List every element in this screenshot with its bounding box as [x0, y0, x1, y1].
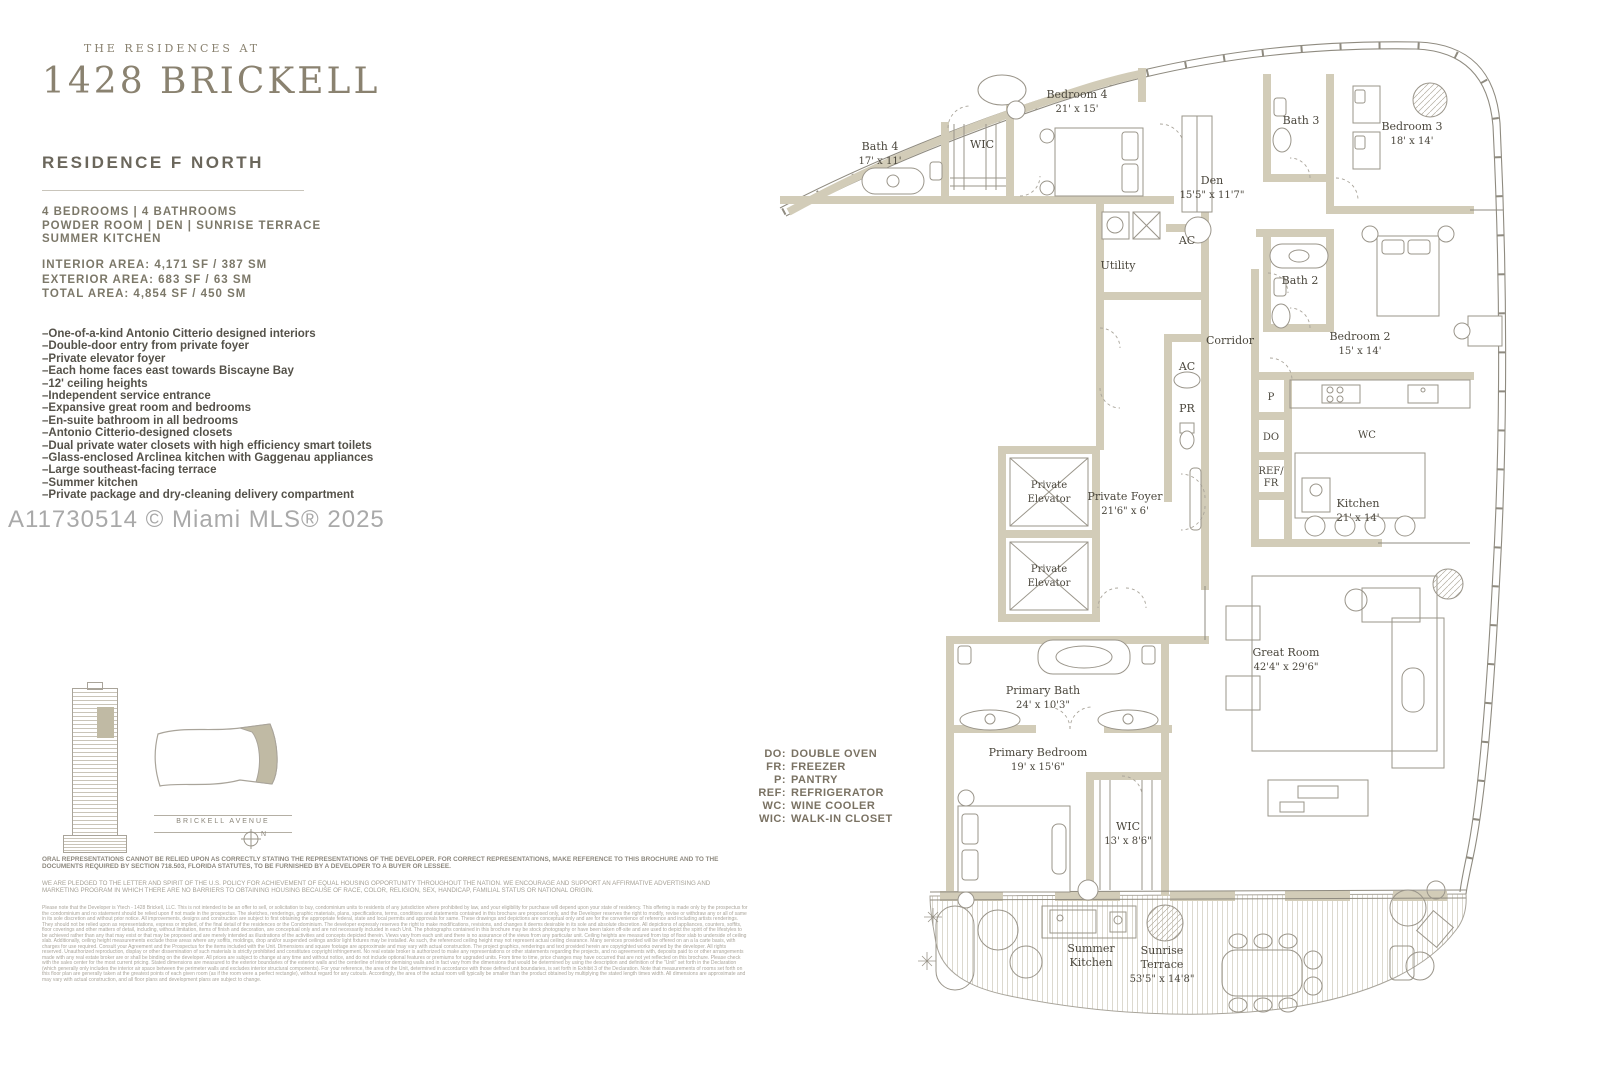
room-label-ac1: AC [1178, 234, 1195, 247]
building-elevation-cap [87, 682, 103, 690]
room-dims-primarywic: 13' x 8'6" [1104, 836, 1152, 847]
room-label-bath3: Bath 3 [1283, 114, 1320, 127]
label-fr: FR [1264, 478, 1279, 489]
room-label-terrace: Sunrise [1141, 944, 1184, 957]
feature-item: –Double-door entry from private foyer [42, 340, 373, 352]
compass-icon: N [240, 826, 266, 852]
feature-item: –Private elevator foyer [42, 353, 373, 365]
label-ref: REF/ [1258, 466, 1284, 477]
room-dims-bedroom4: 21' x 15' [1056, 104, 1099, 115]
area-line: EXTERIOR AREA: 683 SF / 63 SM [42, 273, 267, 288]
oral-representations-disclaimer: ORAL REPRESENTATIONS CANNOT BE RELIED UP… [42, 856, 748, 870]
equal-housing-statement: WE ARE PLEDGED TO THE LETTER AND SPIRIT … [42, 880, 748, 894]
feature-item: –Expansive great room and bedrooms [42, 402, 373, 414]
room-label-greatroom: Great Room [1253, 646, 1321, 659]
room-label-primarywic: WIC [1116, 820, 1140, 833]
room-label-bath2: Bath 2 [1282, 274, 1319, 287]
label-double-oven: DO [1263, 432, 1279, 443]
room-dims-primarybedroom: 19' x 15'6" [1011, 762, 1065, 773]
label-wine-cooler: WC [1358, 430, 1376, 441]
page-title: RESIDENCE F NORTH [42, 153, 264, 173]
room-label-bedroom4: Bedroom 4 [1046, 88, 1107, 101]
building-highlight-block [97, 707, 114, 738]
compass-n: N [261, 831, 266, 838]
brand-name: 1428 BRICKELL [42, 61, 302, 102]
room-label-corridor: Corridor [1206, 334, 1255, 347]
room-dims-terrace: 53'5" x 14'8" [1130, 974, 1195, 985]
label-pantry: P [1268, 392, 1275, 403]
config-line: POWDER ROOM | DEN | SUNRISE TERRACE [42, 220, 321, 234]
room-dims-foyer: 21'6" x 6' [1101, 506, 1149, 517]
title-divider [42, 190, 304, 191]
room-label-summerkitchenb: Kitchen [1070, 956, 1113, 969]
floor-plan: Bath 4 17' x 11' WIC Bedroom 4 21' x 15'… [770, 28, 1545, 1048]
feature-item: –Private package and dry-cleaning delive… [42, 489, 373, 501]
brand-tagline: THE RESIDENCES AT [42, 42, 302, 55]
room-label-kitchen: Kitchen [1337, 497, 1380, 510]
feature-item: –Independent service entrance [42, 390, 373, 402]
feature-item: –One-of-a-kind Antonio Citterio designed… [42, 328, 373, 340]
feature-item: –12' ceiling heights [42, 378, 373, 390]
street-line [154, 815, 292, 816]
feature-item: –Antonio Citterio-designed closets [42, 427, 373, 439]
room-label-bedroom3: Bedroom 3 [1381, 120, 1442, 133]
building-elevation-base [63, 835, 127, 853]
floorplan-brochure-page: THE RESIDENCES AT 1428 BRICKELL RESIDENC… [0, 0, 1600, 1066]
unit-configuration: 4 BEDROOMS | 4 BATHROOMS POWDER ROOM | D… [42, 206, 321, 247]
room-label-den: Den [1201, 174, 1223, 187]
feature-item: –Dual private water closets with high ef… [42, 440, 373, 452]
room-label-pr: PR [1179, 402, 1195, 415]
room-dims-bath4: 17' x 11' [859, 156, 902, 167]
feature-item: –Each home faces east towards Biscayne B… [42, 365, 373, 377]
area-line: INTERIOR AREA: 4,171 SF / 387 SM [42, 258, 267, 273]
feature-item: –Large southeast-facing terrace [42, 464, 373, 476]
room-dims-den: 15'5" x 11'7" [1180, 190, 1245, 201]
room-dims-primarybath: 24' x 10'3" [1016, 700, 1070, 711]
room-label-wic4: WIC [970, 138, 994, 151]
room-label-elevator2b: Elevator [1028, 578, 1071, 589]
room-label-bath4: Bath 4 [862, 140, 899, 153]
room-label-elevator1b: Elevator [1028, 494, 1071, 505]
feature-item: –Summer kitchen [42, 477, 373, 489]
room-label-ac2: AC [1178, 360, 1195, 373]
site-key-plan [152, 722, 302, 802]
room-dims-bedroom3: 18' x 14' [1391, 136, 1434, 147]
feature-item: –Glass-enclosed Arclinea kitchen with Ga… [42, 452, 373, 464]
config-line: SUMMER KITCHEN [42, 233, 321, 247]
mls-watermark: A11730514 © Miami MLS® 2025 [8, 506, 385, 534]
key-plan: BRICKELL AVENUE N [40, 660, 300, 850]
room-dims-kitchen: 21' x 14' [1337, 513, 1380, 524]
room-label-primarybedroom: Primary Bedroom [989, 746, 1088, 759]
room-label-foyer: Private Foyer [1087, 490, 1163, 503]
room-dims-greatroom: 42'4" x 29'6" [1254, 662, 1319, 673]
street-line [154, 832, 292, 833]
room-label-bedroom2: Bedroom 2 [1329, 330, 1390, 343]
room-label-summerkitchen: Summer [1067, 942, 1115, 955]
feature-item: –En-suite bathroom in all bedrooms [42, 415, 373, 427]
developer-fine-print: Please note that the Developer is Ytech … [42, 906, 748, 983]
fine-print-body: This is not intended to be an offer to s… [42, 905, 748, 983]
sunrise-terrace-deck [930, 894, 1466, 1014]
area-line: TOTAL AREA: 4,854 SF / 450 SM [42, 287, 267, 302]
brand-logo: THE RESIDENCES AT 1428 BRICKELL [42, 42, 302, 102]
room-label-utility: Utility [1101, 259, 1137, 272]
room-label-primarybath: Primary Bath [1006, 684, 1080, 697]
street-label: BRICKELL AVENUE [160, 818, 286, 825]
room-label-terraceb: Terrace [1141, 958, 1184, 971]
room-label-elevator1: Private [1031, 480, 1067, 491]
room-label-elevator2: Private [1031, 564, 1067, 575]
feature-list: –One-of-a-kind Antonio Citterio designed… [42, 328, 373, 502]
room-dims-bedroom2: 15' x 14' [1339, 346, 1382, 357]
config-line: 4 BEDROOMS | 4 BATHROOMS [42, 206, 321, 220]
unit-areas: INTERIOR AREA: 4,171 SF / 387 SM EXTERIO… [42, 258, 267, 302]
